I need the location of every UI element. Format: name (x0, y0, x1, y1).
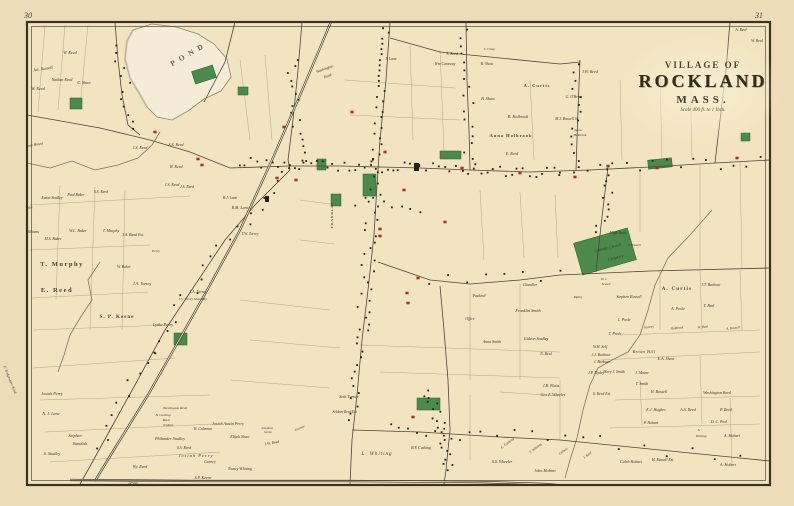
map-label: Gideon Studley (524, 336, 549, 341)
map-label: W. Reed (63, 50, 77, 55)
map-label: Eaton Studley (40, 196, 63, 200)
map-label: J.T. Barbour (701, 283, 721, 287)
map-label: L. Poole (617, 318, 631, 322)
map-label: Washington Reed (703, 390, 732, 395)
map-label: J.P. Ripley (588, 371, 604, 375)
map-label: Jenkins (163, 423, 174, 427)
map-label: Seldom Reed Est. (332, 410, 357, 414)
map-label: Whiting (695, 434, 706, 438)
map-label: Ripley (573, 295, 583, 299)
map-label: T. Murphy (103, 228, 120, 233)
map-label: Standish (73, 441, 87, 446)
map-label: Stephen Russell (616, 294, 642, 299)
map-label: T.A. Rand Est. (122, 233, 144, 237)
map-label: S. Studley (44, 451, 61, 456)
map-label: J.A. Torrey (133, 281, 152, 286)
map-label: W. Beal (751, 39, 763, 43)
map-label: Elijah Shaw (229, 434, 250, 439)
map-label: Franklin Smith (514, 308, 540, 313)
map-label: A. Hobart (719, 462, 737, 467)
map-label: Josiah Perry (178, 453, 213, 458)
map-label: W. Baker (117, 265, 131, 269)
map-title-rockland: ROCKLAND (620, 71, 786, 92)
map-label: B. Holbrook (508, 114, 529, 119)
map-label: Josiah Perry (41, 391, 63, 396)
map-label: J.J. Barbour (591, 353, 611, 357)
map-label: Geo F. Wheeler (541, 392, 566, 397)
map-label: Caleb Hobart (620, 459, 643, 464)
map-label: A. Hobart (723, 433, 741, 438)
map-label: Reed (162, 418, 170, 422)
map-label: E.A. Shaw (657, 356, 675, 361)
map-label: W.H. Self (593, 345, 608, 349)
map-label: J.S. Reed (180, 185, 194, 189)
map-label: E.J. Hughes (645, 407, 666, 412)
map-label: R. Coleman (193, 427, 212, 431)
map-label: T.W. Torrey (241, 232, 259, 236)
map-label: Mary J. Smith (602, 370, 625, 374)
map-label: Anna (573, 128, 581, 132)
map-label: H. Russell Est. (651, 458, 674, 462)
map-label: B. Cushing (155, 413, 170, 417)
map-label: Green (264, 430, 272, 434)
map-label: P. Reed (719, 407, 733, 412)
map-label: A. Beal (734, 28, 746, 32)
map-label: J. Barbour (594, 360, 611, 364)
atlas-page: W. ReedJas. RussellNathan ReedC. ShawW. … (0, 0, 794, 506)
map-label: A.S. Reed (679, 407, 696, 412)
map-label: J.S. Torrey Shoe Mfy. (179, 297, 208, 301)
map-label: Anna Holbrook (489, 133, 532, 138)
map-label: S. Reed Est. (593, 392, 611, 396)
map-label: E. Reed (505, 151, 519, 156)
map-label: J.S. Reed (133, 145, 149, 150)
map-label: W. Reed (170, 164, 184, 169)
map-label: B. Shaw (481, 96, 495, 101)
map-label: A. Poole (670, 306, 685, 311)
map-title-mass: MASS. (620, 94, 786, 106)
map-label: G. O'Brien (566, 95, 583, 99)
map-label: Seth Turner (339, 394, 359, 399)
map-label: T. Murphy (40, 261, 84, 268)
map-label: F. Russell (626, 243, 640, 247)
map-label: Stephen (68, 433, 81, 438)
map-label: J.A. Torrey (190, 290, 207, 294)
map-title-block: VILLAGE OF ROCKLAND MASS. Scale 400 ft. … (620, 60, 786, 113)
map-label: S.S. Reed (177, 446, 191, 450)
map-label: P. Hobart (643, 421, 660, 425)
map-label: J. Maine (635, 371, 649, 375)
map-label: N. J. Lane (41, 411, 59, 416)
map-label: FRANKLIN (330, 202, 334, 229)
map-label: Gurney (204, 460, 216, 464)
map-label: L. Whiting (360, 452, 392, 457)
map-label: W. J. (601, 277, 608, 281)
map-label: High Rock (609, 231, 626, 235)
map-label: A. Curtis (662, 287, 693, 292)
map-label: S.P. Keene (195, 475, 212, 480)
page-number-right: 31 (755, 11, 763, 20)
map-label: Perry (151, 249, 160, 253)
map-label: R.M. Lane (231, 205, 249, 210)
map-label: H. Russell (650, 389, 668, 394)
map-label: Packard (472, 294, 486, 298)
map-label: S. (698, 428, 701, 432)
map-label: Anna Smith (482, 339, 502, 344)
map-label: Philander Studley (154, 436, 185, 441)
map-label: A. Reed (445, 52, 458, 56)
map-label: M.S. Baker (44, 237, 62, 241)
map-label: Wm Caraway (435, 62, 456, 66)
map-label: M.J. Russell Sr. (554, 117, 579, 121)
map-label: N. Beal (539, 352, 551, 356)
map-label: Nancy Whiting (227, 466, 252, 471)
map-label: Paul Baker (66, 193, 85, 197)
map-label: J.S. Reed (165, 182, 181, 187)
map-label: Washington Reed (163, 406, 188, 410)
map-label: B.F. Cushing (411, 446, 431, 450)
map-label: Brown Hill (633, 349, 656, 354)
map-label: Holbrook (573, 133, 587, 137)
map-label: W. Reed (31, 86, 45, 91)
map-label: B.J. Lane (223, 196, 238, 200)
map-label: Sewell (602, 282, 611, 286)
map-label: J.W. Reed (582, 69, 599, 74)
map-label: B. Shaw (481, 62, 494, 66)
map-label: T. Beal (704, 304, 715, 308)
map-label: A. Curtis (524, 83, 551, 88)
map-label: Office (465, 317, 475, 321)
map-label: Josiah Austin Perry (212, 421, 244, 426)
map-label: S.S. Wheeler (492, 459, 513, 464)
map-label: Nathan Reed (51, 77, 74, 82)
map-label: S.S. Reed (94, 190, 108, 194)
map-label: T. Smith (636, 382, 648, 386)
map-title-village-of: VILLAGE OF (620, 60, 786, 70)
map-label: John Hobart (534, 468, 556, 473)
map-label: Chandler (523, 283, 538, 287)
map-label: J.B. Platts (543, 383, 560, 388)
map-label: Wy. Reed (133, 464, 149, 469)
map-label: C. Shaw (77, 80, 91, 85)
map-label: E. Reed (41, 287, 73, 294)
map-label: J. Lane (385, 57, 396, 61)
map-label: T. Craig (483, 47, 495, 51)
map-scale-note: Scale 400 ft. to 1 Inch. (620, 108, 786, 113)
map-label: T. Poole (609, 332, 622, 336)
map-label: D. C. Pool (710, 420, 727, 424)
map-label: S. P. Keene (100, 315, 135, 320)
page-number-left: 30 (24, 11, 32, 20)
map-label: Lydia Perry (152, 322, 173, 327)
map-label: S.S. Reed (169, 142, 185, 147)
map-label: W.L. Baker (69, 228, 87, 233)
